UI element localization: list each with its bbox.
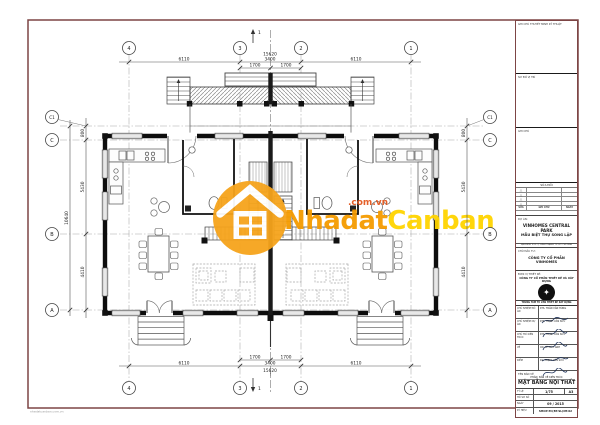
dim-span-top-left: 6110 bbox=[179, 56, 190, 62]
title-block-location-box: SƠ ĐỒ VỊ TRÍ bbox=[516, 74, 577, 128]
dim-row-ba-right: 4410 bbox=[461, 266, 467, 277]
code-label: KÝ HIỆU bbox=[516, 408, 534, 414]
signature-role: VẼ bbox=[516, 345, 539, 357]
entrance-steps bbox=[131, 317, 190, 346]
dim-total-width-bot: 15620 bbox=[263, 368, 277, 374]
signature-rows: CHỦ NHIỆM ĐỒ ÁN KTS. TRẦN VĂN HÙNG CHỦ N… bbox=[516, 306, 577, 371]
date-value: 09 / 2015 bbox=[534, 401, 577, 406]
signature-role: CHỦ NHIỆM ĐỒ ÁN bbox=[516, 306, 539, 318]
grid-col-2-bot: 2 bbox=[299, 386, 302, 392]
watermark-domain: .com.vn bbox=[348, 198, 388, 208]
section-label-top: 1 bbox=[258, 30, 261, 36]
grid-row-c1-left: C1 bbox=[49, 115, 55, 120]
grid-col-1-top: 1 bbox=[409, 46, 412, 52]
designer-logo: ✦ bbox=[538, 284, 555, 301]
dossier-value bbox=[534, 395, 577, 400]
project-name: VINHOMES CENTRAL PARK bbox=[518, 223, 575, 233]
dim-span-bot-left: 6110 bbox=[179, 360, 190, 366]
dim-span-bot-right: 6110 bbox=[351, 360, 362, 366]
dim-half-top-a: 1700 bbox=[250, 63, 261, 69]
drawing-title: MẶT BẰNG NỘI THẤT T1 bbox=[518, 380, 575, 387]
signature-role: CHỦ TRÌ KIẾN TRÚC bbox=[516, 332, 539, 344]
signature-row: CHỦ NHIỆM DỰ ÁN KTS. TRỊNH VĂN SỬU bbox=[516, 319, 577, 332]
project-label: DỰ ÁN: bbox=[518, 218, 575, 221]
grid-row-c-left: C bbox=[50, 138, 54, 144]
grid-col-3-bot: 3 bbox=[238, 386, 241, 392]
client-name: CÔNG TY CỔ PHẦN VINHOMES bbox=[518, 256, 575, 265]
notes-box-label: GHI CHÚ THUYẾT MINH KỸ THUẬT bbox=[518, 23, 575, 26]
signature-role: CHỦ NHIỆM DỰ ÁN bbox=[516, 319, 539, 331]
dim-total-height-left: 10640 bbox=[64, 211, 70, 225]
grid-row-c1-right: C1 bbox=[487, 115, 493, 120]
revision-col-3: NGÀY bbox=[562, 206, 577, 211]
dim-half-bot-a: 1700 bbox=[250, 354, 261, 360]
grid-col-2-top: 2 bbox=[299, 46, 302, 52]
dim-row-ba-left: 4410 bbox=[80, 266, 86, 277]
dim-half-top-b: 1700 bbox=[281, 63, 292, 69]
signature-name: KTS. TRỊNH VĂN SỬU bbox=[540, 320, 576, 323]
dim-half-bot-b: 1700 bbox=[281, 354, 292, 360]
grid-col-1-bot: 1 bbox=[409, 386, 412, 392]
signature-row: CHỦ TRÌ KIẾN TRÚC KTS. TRỊNH VĂN SỬU bbox=[516, 332, 577, 345]
signature-name: KS. TRỊNH VĂN SỬU bbox=[540, 359, 576, 362]
designer-name: CÔNG TY CỔ PHẦN THIẾT KẾ VÀ XÂY DỰNG bbox=[518, 277, 575, 284]
signature-name: KTS. TRỊNH VĂN SỬU bbox=[540, 333, 576, 336]
floor-plan-canvas: NhadatCanban .com.vn 15620 6110 3400 611… bbox=[0, 0, 600, 425]
section-label-bot: 1 bbox=[258, 386, 261, 392]
dim-row-cb-left: 5430 bbox=[80, 181, 86, 192]
meta-rows: TỶ LỆ 1/75 A3 HỒ SƠ SỐ NGÀY 09 / 2015 KÝ… bbox=[516, 389, 577, 417]
grid-col-4-top: 4 bbox=[127, 46, 130, 52]
grid-row-a-right: A bbox=[488, 308, 492, 314]
grid-row-b-left: B bbox=[50, 232, 54, 238]
client-section: CHỦ ĐẦU TƯ: CÔNG TY CỔ PHẦN VINHOMES bbox=[516, 248, 577, 271]
code-row: KÝ HIỆU SHOP-TC(BT.SL)NT.02 bbox=[516, 408, 577, 414]
client-label: CHỦ ĐẦU TƯ: bbox=[518, 250, 575, 253]
scale-value: 1/75 bbox=[534, 389, 564, 394]
title-block: GHI CHÚ THUYẾT MINH KỸ THUẬT SƠ ĐỒ VỊ TR… bbox=[515, 20, 578, 418]
signature-name: KTS. TRẦN VĂN HÙNG bbox=[540, 307, 576, 310]
dim-row-c1c-left: 800 bbox=[80, 129, 86, 137]
revision-col-1: SỬA bbox=[516, 206, 527, 211]
revision-table: SỬA ĐỔI △ △ △ △ SỬA GHI CHÚ NGÀY bbox=[516, 183, 577, 216]
dim-row-cb-right: 5430 bbox=[461, 181, 467, 192]
signature-row: VẼ CN. LÊ ĐỨC ANH bbox=[516, 345, 577, 358]
dim-mid-bot: 3400 bbox=[265, 360, 276, 366]
dim-mid-top: 3400 bbox=[265, 56, 276, 62]
grid-row-a-left: A bbox=[50, 308, 54, 314]
grid-row-c-right: C bbox=[488, 138, 492, 144]
signature-row: CHỦ NHIỆM ĐỒ ÁN KTS. TRẦN VĂN HÙNG bbox=[516, 306, 577, 319]
paper-size: A3 bbox=[564, 389, 577, 394]
dossier-label: HỒ SƠ SỐ bbox=[516, 395, 534, 400]
dim-row-c1c-right: 800 bbox=[461, 129, 467, 137]
date-label: NGÀY bbox=[516, 401, 534, 406]
balcony-rail bbox=[225, 73, 271, 86]
project-section: DỰ ÁN: VINHOMES CENTRAL PARK MẪU BIỆT TH… bbox=[516, 216, 577, 248]
watermark-text: NhadatCanban bbox=[284, 206, 494, 236]
watermark-brand-b: Canban bbox=[387, 206, 494, 236]
grid-col-3-top: 3 bbox=[238, 46, 241, 52]
title-block-legend-box: GHI CHÚ bbox=[516, 128, 577, 183]
signature-name: CN. LÊ ĐỨC ANH bbox=[540, 346, 576, 349]
footer-note: nhadatcanban.com.vn bbox=[30, 410, 64, 414]
drawing-sheet: NhadatCanban .com.vn 15620 6110 3400 611… bbox=[0, 0, 600, 425]
dim-span-top-right: 6110 bbox=[351, 56, 362, 62]
scale-label: TỶ LỆ bbox=[516, 389, 534, 394]
title-block-notes-box: GHI CHÚ THUYẾT MINH KỸ THUẬT bbox=[516, 21, 577, 74]
legend-box-label: GHI CHÚ bbox=[518, 130, 575, 133]
watermark-brand-a: Nhadat bbox=[284, 206, 387, 236]
grid-col-4-bot: 4 bbox=[127, 386, 130, 392]
revision-col-2: GHI CHÚ bbox=[527, 206, 562, 211]
signature-row: KIỂM KS. TRỊNH VĂN SỬU bbox=[516, 358, 577, 371]
project-type: MẪU BIỆT THỰ SONG LẬP bbox=[518, 233, 575, 238]
designer-section: ĐƠN VỊ THIẾT KẾ: CÔNG TY CỔ PHẦN THIẾT K… bbox=[516, 271, 577, 301]
signature-role: KIỂM bbox=[516, 358, 539, 370]
code-value: SHOP-TC(BT.SL)NT.02 bbox=[534, 408, 577, 414]
porch-stair bbox=[167, 77, 190, 104]
project-address: ĐỊA ĐIỂM: P.22, Q. BÌNH THẠNH, TP. HỒ CH… bbox=[516, 243, 577, 247]
grid-row-b-right: B bbox=[488, 232, 492, 238]
drawing-title-section: TÊN BẢN VẼ PHẦN: BẢN VẼ KIẾN TRÚC MẶT BẰ… bbox=[516, 371, 577, 389]
location-box-label: SƠ ĐỒ VỊ TRÍ bbox=[518, 76, 575, 79]
